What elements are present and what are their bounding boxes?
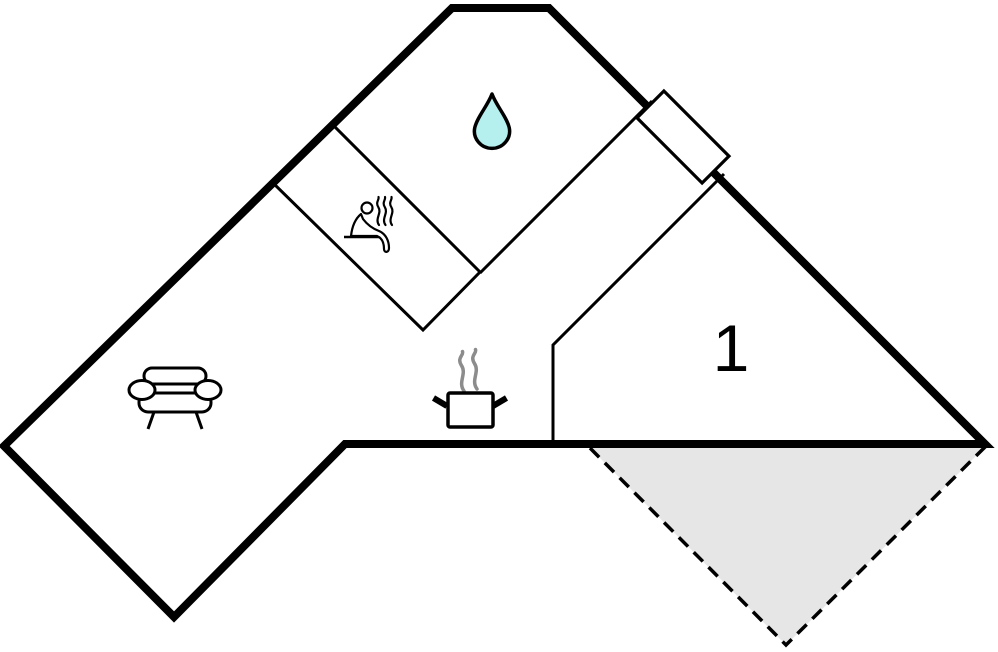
bedroom1-label: 1 xyxy=(713,311,750,385)
floor-plan: 1 xyxy=(0,0,998,652)
terrace-triangle xyxy=(588,446,986,645)
floor-plan-canvas: 1 xyxy=(0,0,998,652)
